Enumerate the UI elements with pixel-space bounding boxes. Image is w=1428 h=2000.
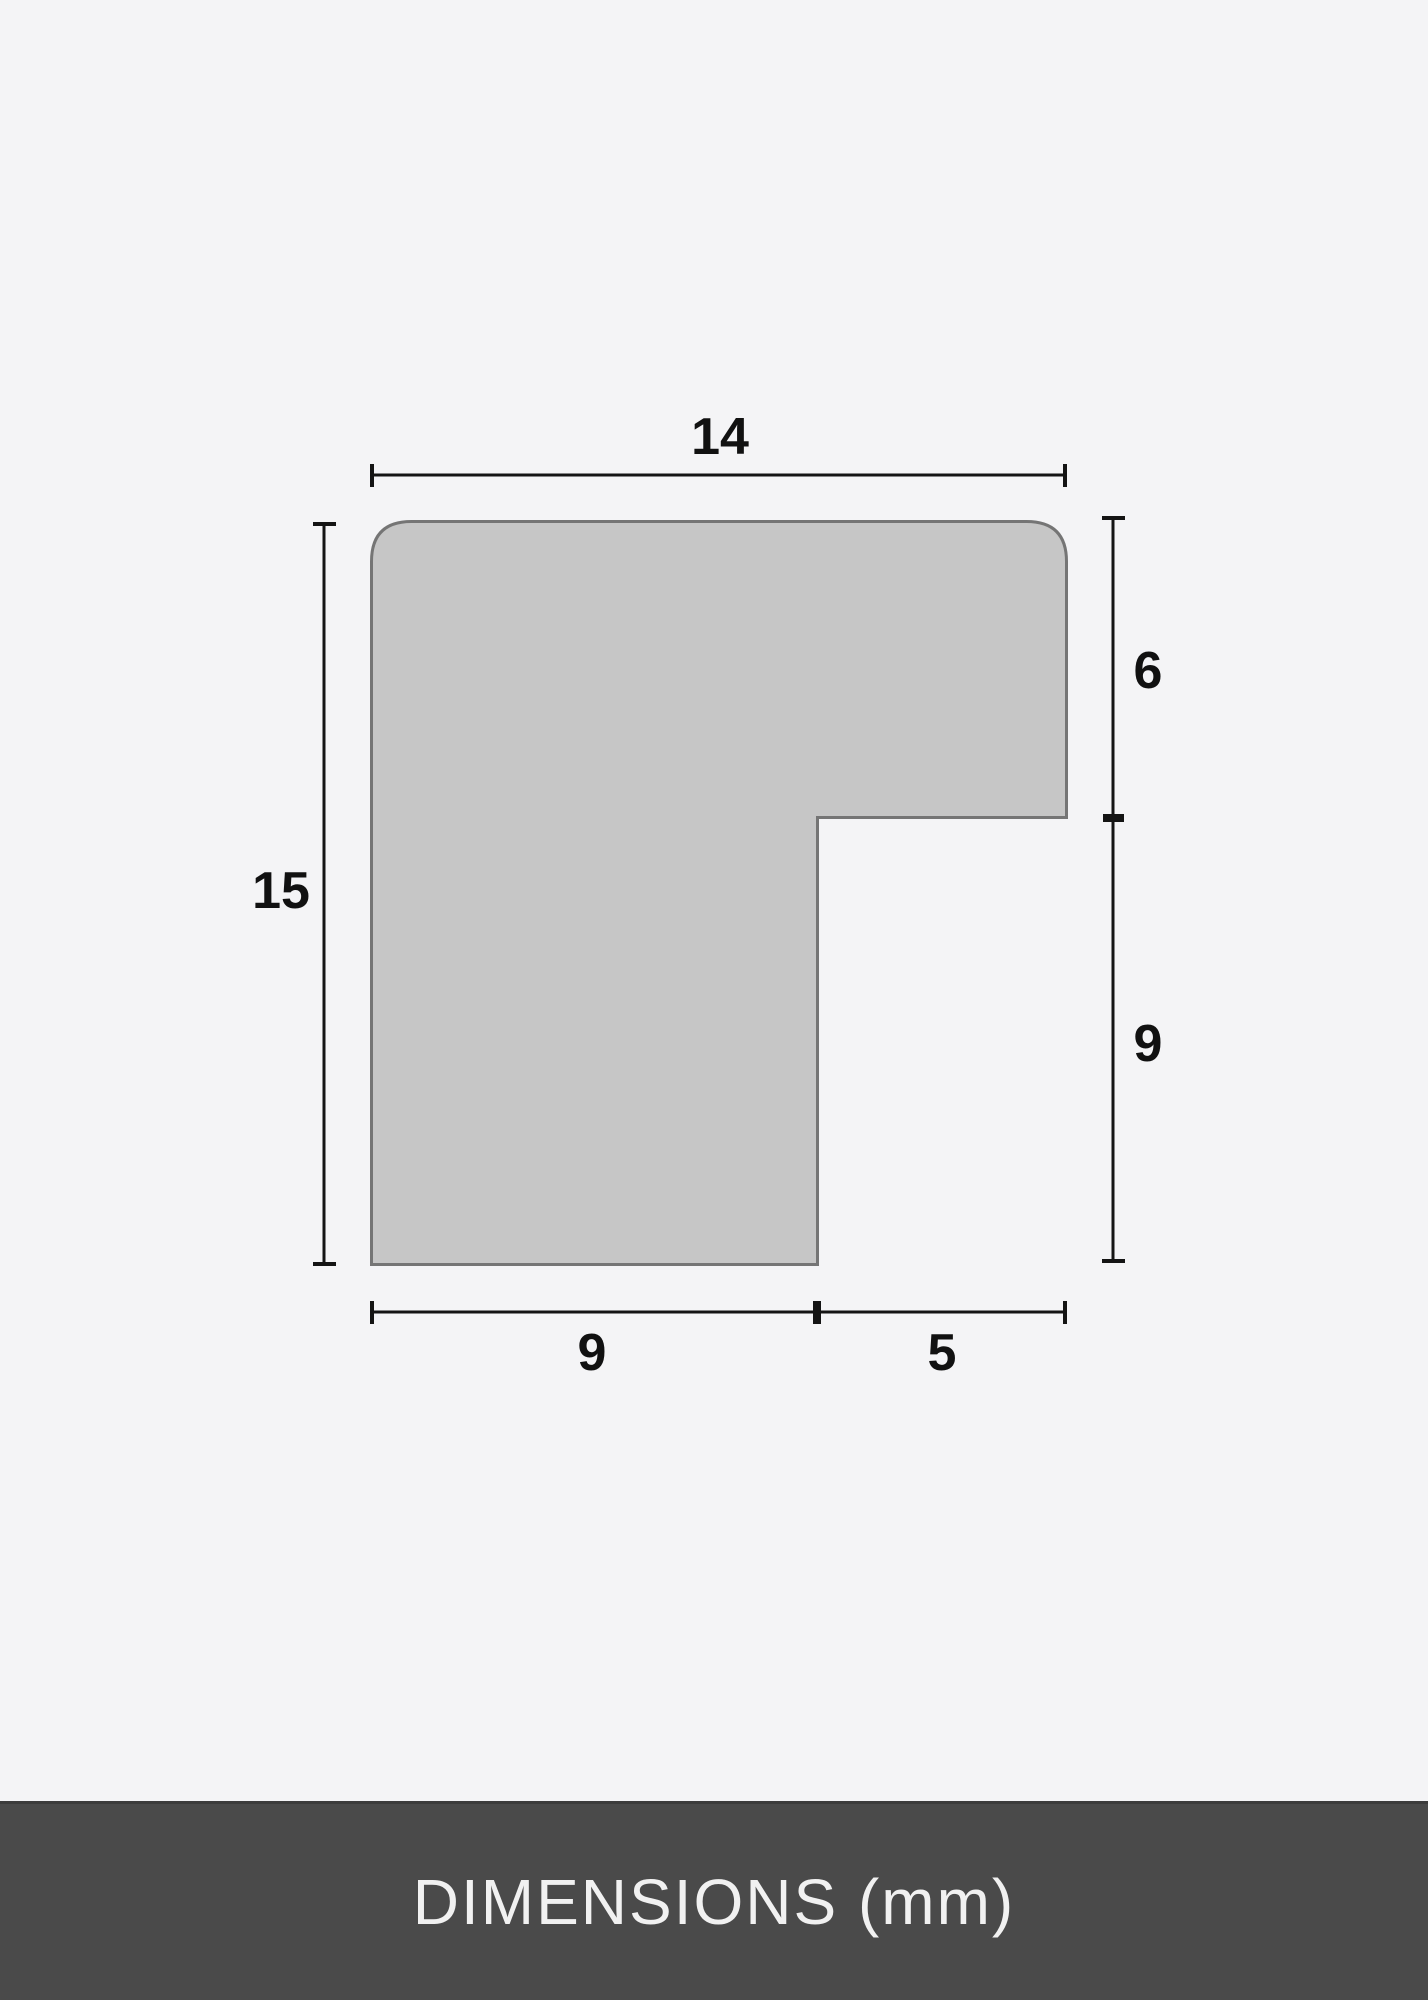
moulding-profile-shape bbox=[372, 522, 1067, 1265]
dim-label-bottom-right: 5 bbox=[928, 1327, 957, 1379]
dim-label-bottom-left: 9 bbox=[578, 1327, 607, 1379]
dimension-line-top bbox=[371, 464, 1066, 487]
dimension-line-bottom bbox=[371, 1301, 1066, 1324]
dim-label-left-height: 15 bbox=[252, 865, 310, 917]
dimension-line-right bbox=[1102, 517, 1125, 1262]
dim-label-right-lower: 9 bbox=[1134, 1018, 1163, 1070]
footer-title: DIMENSIONS (mm) bbox=[413, 1865, 1015, 1939]
dim-label-top-width: 14 bbox=[691, 411, 749, 463]
profile-dimension-diagram bbox=[0, 0, 1428, 2000]
footer-bar: DIMENSIONS (mm) bbox=[0, 1801, 1428, 2000]
dim-label-right-upper: 6 bbox=[1134, 645, 1163, 697]
dimension-line-left bbox=[313, 523, 336, 1265]
page-background: 14 15 6 9 9 5 DIMENSIONS (mm) bbox=[0, 0, 1428, 2000]
